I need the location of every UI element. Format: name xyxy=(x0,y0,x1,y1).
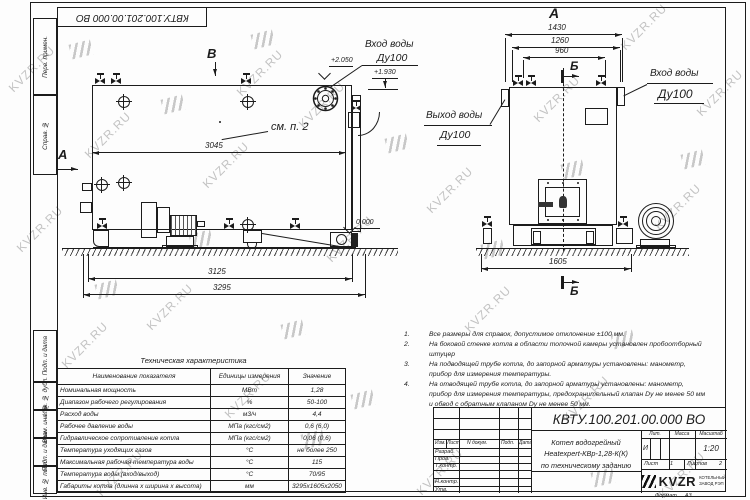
dim-1605-text: 1605 xyxy=(549,258,567,266)
inlet-dn-label-front: Ду100 xyxy=(658,88,693,100)
boiler-rear-wall-line xyxy=(345,86,346,229)
tb-product-line2: Heatexpert-КВр-1,28-К(К) xyxy=(544,449,628,458)
front-bracket xyxy=(80,202,92,213)
burner-casing xyxy=(157,207,170,233)
spec-value: не более 250 xyxy=(289,445,346,457)
spec-row: Габариты котла (длинна х ширина х высота… xyxy=(58,481,346,493)
tb-col-izm: Изм. xyxy=(435,441,446,446)
section-arrow-icon xyxy=(563,282,579,283)
spec-name: Номинальная мощность xyxy=(58,385,211,397)
valve-icon xyxy=(618,221,628,228)
view-label-a: А xyxy=(549,6,559,20)
note-number: 4. xyxy=(404,380,429,410)
door-handle xyxy=(559,196,567,208)
spec-value: 1,28 xyxy=(289,385,346,397)
rotated-stamp-box: КВТУ.100.201.00.000 ВО xyxy=(57,7,207,27)
tb-row-razrab: Разраб. xyxy=(435,450,455,456)
dim-ext-line xyxy=(605,60,606,78)
tb-product-name: Котел водогрейный Heatexpert-КВр-1,28-К(… xyxy=(533,437,639,471)
spec-row: Рабочее давление водыМПа (кгс/см2)0,6 (6… xyxy=(58,421,346,433)
tb-listov-value: 2 xyxy=(719,462,722,468)
valve-icon xyxy=(513,80,523,87)
frame-left-foot xyxy=(93,230,109,247)
spec-table-title: Техническая характеристика xyxy=(57,357,330,365)
frame-mid-bracket xyxy=(243,230,262,243)
tb-col-data: Дата xyxy=(519,441,532,446)
motor-shaft xyxy=(197,221,205,227)
centerline-target-icon xyxy=(118,177,130,189)
margin-box-podp-data: Подп. и дата xyxy=(33,330,57,382)
dim-ext-line xyxy=(83,254,84,298)
tb-row-utv: Утв. xyxy=(435,488,448,494)
inlet-dn-label: Ду100 xyxy=(377,53,407,64)
level-zero-underline xyxy=(354,228,380,229)
valve-icon xyxy=(290,223,300,230)
level-flange-arrow-icon xyxy=(385,78,386,88)
section-mark-b-bottom: Б xyxy=(570,285,579,297)
centerline-target-icon xyxy=(242,219,254,231)
rotated-doc-number: КВТУ.100.201.00.000 ВО xyxy=(76,12,189,23)
spec-row: Температура воды (вход/выход)°С70/95 xyxy=(58,469,346,481)
centerline-target-icon xyxy=(118,96,130,108)
note-text: На боковой стенке котла в области топочн… xyxy=(429,340,706,360)
spec-row: Температура уходящих газов°Сне более 250 xyxy=(58,445,346,457)
tb-line xyxy=(684,459,685,469)
centerline-target-icon xyxy=(96,179,108,191)
level-top-label: +2.050 xyxy=(331,57,353,64)
tb-line xyxy=(434,486,531,487)
view-b-arrow-icon xyxy=(215,62,216,76)
inlet-flange-front xyxy=(617,87,625,106)
base-foot xyxy=(533,231,541,244)
valve-icon xyxy=(482,221,492,228)
spec-row: Максимальная рабочая температура воды°С1… xyxy=(58,457,346,469)
inlet-water-label-front: Вход воды xyxy=(650,69,699,79)
fan-elbow xyxy=(616,228,633,244)
tb-col-ndoc: N докум. xyxy=(467,441,487,446)
notes-block: 1.Все размеры для справок, допустимое от… xyxy=(404,330,706,410)
note-text: Все размеры для справок, допустимое откл… xyxy=(429,330,706,340)
dim-3295-line xyxy=(83,294,365,295)
ground-hatch xyxy=(62,248,398,256)
drain-pipe xyxy=(483,228,492,244)
dim-3045-line xyxy=(92,152,346,153)
tb-doc-number: КВТУ.100.201.00.000 ВО xyxy=(531,413,727,427)
spec-table: Наименование показателя Единицы измерени… xyxy=(57,368,346,493)
spec-name: Температура уходящих газов xyxy=(58,445,211,457)
outlet-dn-label: Ду100 xyxy=(440,130,470,141)
spec-name: Расход воды xyxy=(58,409,211,421)
ground-hatch xyxy=(476,248,689,256)
frame-right-wheel xyxy=(336,234,347,245)
valve-icon xyxy=(95,78,105,85)
spec-unit: мм xyxy=(211,481,289,493)
dim-3045-text: 3045 xyxy=(205,142,223,150)
tb-product-line1: Котел водогрейный xyxy=(551,438,620,447)
tb-listov-label: Листов xyxy=(687,462,707,468)
dim-ext-line xyxy=(620,50,621,82)
tb-masshtab-label: Масштаб xyxy=(695,432,727,437)
spec-name: Габариты котла (длинна х ширина х высота… xyxy=(58,481,211,493)
spec-unit: °С xyxy=(211,457,289,469)
format-value: А3 xyxy=(685,493,692,499)
margin-box-inv-podl: Инв. № подл. xyxy=(33,466,57,494)
note-number: 1. xyxy=(404,330,429,340)
spec-header-value: Значение xyxy=(289,369,346,385)
section-arrow-icon xyxy=(563,76,579,77)
note-text: На подводящей трубе котла, до запорной а… xyxy=(429,360,706,380)
spec-unit: °С xyxy=(211,445,289,457)
tb-line xyxy=(434,429,531,430)
tb-line xyxy=(434,470,531,471)
front-stub xyxy=(82,183,92,191)
valve-icon xyxy=(596,80,606,87)
callout-see-p2: см. п. 2 xyxy=(271,122,308,133)
tb-lit-value: И xyxy=(641,445,650,452)
tb-line xyxy=(459,408,460,493)
note-number: 2. xyxy=(404,340,429,360)
inlet-water-label: Вход воды xyxy=(365,40,414,50)
tb-row-nkontr: Н.контр. xyxy=(435,480,458,486)
margin-box-label: Инв. № подл. xyxy=(42,460,49,499)
tb-massa-label: Масса xyxy=(669,432,695,437)
kvzr-logo-text: KVZR xyxy=(659,474,696,489)
dim-960-line xyxy=(523,57,605,58)
tb-line xyxy=(641,438,727,439)
burner-flange xyxy=(141,202,157,238)
kvzr-logo-subtext: КОТЕЛЬНЫЙ ЗАВОД РЭП xyxy=(699,475,726,486)
spec-value: 0,6 (6,0) xyxy=(289,421,346,433)
tb-line xyxy=(499,408,500,493)
view-a-arrow-icon xyxy=(58,169,78,170)
kvzr-logo-sub2: ЗАВОД РЭП xyxy=(699,481,726,487)
tb-line xyxy=(434,418,531,419)
spec-unit: °С xyxy=(211,469,289,481)
spec-name: Гидравлическое сопротивление котла xyxy=(58,433,211,445)
tb-col-podp: Подп. xyxy=(501,441,514,446)
note-item: 4.На отводящей трубе котла, до запорной … xyxy=(404,380,706,410)
spec-row: Гидравлическое сопротивление котлаМПа (к… xyxy=(58,433,346,445)
margin-box-label: Справ. № xyxy=(42,121,49,150)
view-mark-b: В xyxy=(207,47,216,60)
dim-3295-text: 3295 xyxy=(213,284,231,292)
spec-name: Максимальная рабочая температура воды xyxy=(58,457,211,469)
spec-value: 4,4 xyxy=(289,409,346,421)
spec-value: 115 xyxy=(289,457,346,469)
engineering-drawing-sheet: KVZR.RU KVZR.RU KVZR.RU KVZR.RU KVZR.RU … xyxy=(0,0,750,500)
spec-unit: МПа (кгс/см2) xyxy=(211,421,289,433)
spec-value: 70/95 xyxy=(289,469,346,481)
tb-line xyxy=(660,438,661,459)
spec-value: 50-100 xyxy=(289,397,346,409)
inlet-label-underline-front xyxy=(647,83,713,84)
dim-1605-line xyxy=(481,268,631,269)
tb-col-list: Лист xyxy=(447,441,460,446)
format-label: Формат xyxy=(655,493,677,499)
valve-icon xyxy=(111,78,121,85)
kvzr-logo-icon xyxy=(642,475,656,488)
format-strip: Формат А3 xyxy=(655,493,692,499)
motor xyxy=(170,215,197,236)
tb-line xyxy=(531,471,641,472)
level-top-underline xyxy=(329,66,353,67)
fan-scroll-icon xyxy=(651,216,661,226)
tb-list-value: 1 xyxy=(670,462,673,468)
spec-row: Номинальная мощностьМВт1,28 xyxy=(58,385,346,397)
tb-lit-label: Лит. xyxy=(641,432,669,437)
spec-header-row: Наименование показателя Единицы измерени… xyxy=(58,369,346,385)
dim-3125-text: 3125 xyxy=(208,268,226,276)
spec-unit: МВт xyxy=(211,385,289,397)
flange-level-line xyxy=(368,89,398,90)
dim-ext-line xyxy=(512,50,513,82)
spec-header-name: Наименование показателя xyxy=(58,369,211,385)
level-zero-label: 0.000 xyxy=(356,219,374,226)
margin-box-label: Подп. и дата xyxy=(42,336,49,375)
valve-icon xyxy=(97,223,107,230)
inlet-flange-icon xyxy=(311,84,340,113)
base-foot xyxy=(586,231,594,244)
centerline-target-icon xyxy=(242,96,254,108)
tb-masshtab-value: 1:20 xyxy=(695,445,727,453)
tb-product-line3: по техническому заданию xyxy=(541,461,631,470)
tb-row-prov: Пров. xyxy=(435,457,450,463)
dim-960-text: 960 xyxy=(555,47,568,55)
spec-value: 3295х1605х2050 xyxy=(289,481,346,493)
spec-unit: % xyxy=(211,397,289,409)
valve-icon xyxy=(351,105,361,112)
outlet-water-label: Выход воды xyxy=(426,111,482,121)
dim-1430-line xyxy=(505,34,622,35)
dim-ext-line xyxy=(505,38,506,82)
spec-row: Диапазон рабочего регулирования%50-100 xyxy=(58,397,346,409)
title-block: КВТУ.100.201.00.000 ВО Изм. Лист N докум… xyxy=(433,407,726,492)
level-flange-label: +1.930 xyxy=(374,69,396,76)
valve-icon xyxy=(526,80,536,87)
spec-header-units: Единицы измерения xyxy=(211,369,289,385)
dim-3125-line xyxy=(88,278,352,279)
spec-name: Диапазон рабочего регулирования xyxy=(58,397,211,409)
dim-1430-text: 1430 xyxy=(548,24,566,32)
inlet-dn-underline-front xyxy=(654,103,704,104)
spec-name: Рабочее давление воды xyxy=(58,421,211,433)
note-item: 1.Все размеры для справок, допустимое от… xyxy=(404,330,706,340)
dim-ext-line xyxy=(365,254,366,298)
view-mark-a: А xyxy=(58,148,67,161)
dim-1260-text: 1260 xyxy=(551,37,569,45)
note-text: На отводящей трубе котла, до запорной ар… xyxy=(429,380,706,410)
dim-ext-line xyxy=(622,38,623,82)
spec-row: Расход водым3/ч4,4 xyxy=(58,409,346,421)
outlet-dn-underline xyxy=(437,145,481,146)
spec-name: Температура воды (вход/выход) xyxy=(58,469,211,481)
tb-line xyxy=(518,408,519,493)
outlet-label-underline xyxy=(424,125,492,126)
margin-box-sprav: Справ. № xyxy=(33,95,57,175)
tb-row-tkontr: Т.контр. xyxy=(435,464,457,470)
margin-box-label: Перв. примен. xyxy=(42,36,49,78)
door-latch xyxy=(538,202,553,207)
spec-value: 0,06 (0,6) xyxy=(289,433,346,445)
tb-logo-cell: KVZR КОТЕЛЬНЫЙ ЗАВОД РЭП xyxy=(642,470,726,492)
note-item: 2.На боковой стенке котла в области топо… xyxy=(404,340,706,360)
tb-list-label: Лист xyxy=(644,462,658,468)
spec-unit: м3/ч xyxy=(211,409,289,421)
inlet-label-underline xyxy=(362,65,418,66)
note-number: 3. xyxy=(404,360,429,380)
dim-ext-line xyxy=(523,60,524,78)
spec-unit: МПа (кгс/см2) xyxy=(211,433,289,445)
valve-icon xyxy=(224,223,234,230)
note-item: 3.На подводящей трубе котла, до запорной… xyxy=(404,360,706,380)
margin-box-perv-primen: Перв. примен. xyxy=(33,18,57,95)
valve-icon xyxy=(241,78,251,85)
inspection-panel xyxy=(585,108,608,125)
section-mark-b-top: Б xyxy=(570,60,579,72)
tb-line xyxy=(650,438,651,459)
rear-flange-dark xyxy=(352,233,358,247)
